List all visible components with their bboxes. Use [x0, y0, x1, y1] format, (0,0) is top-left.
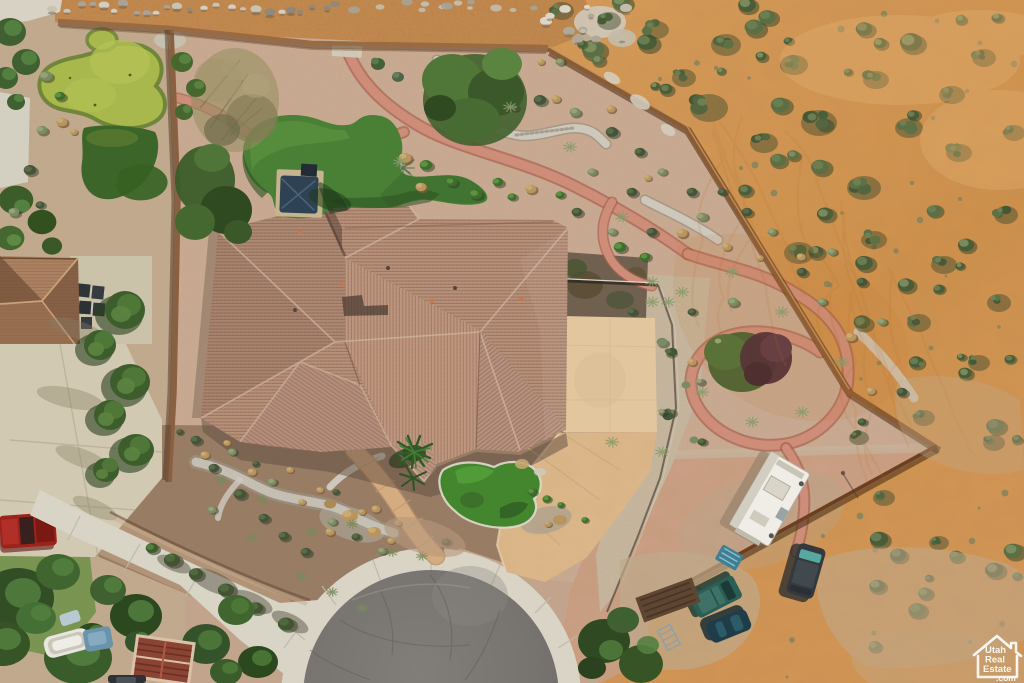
svg-text:.com: .com [996, 673, 1016, 683]
